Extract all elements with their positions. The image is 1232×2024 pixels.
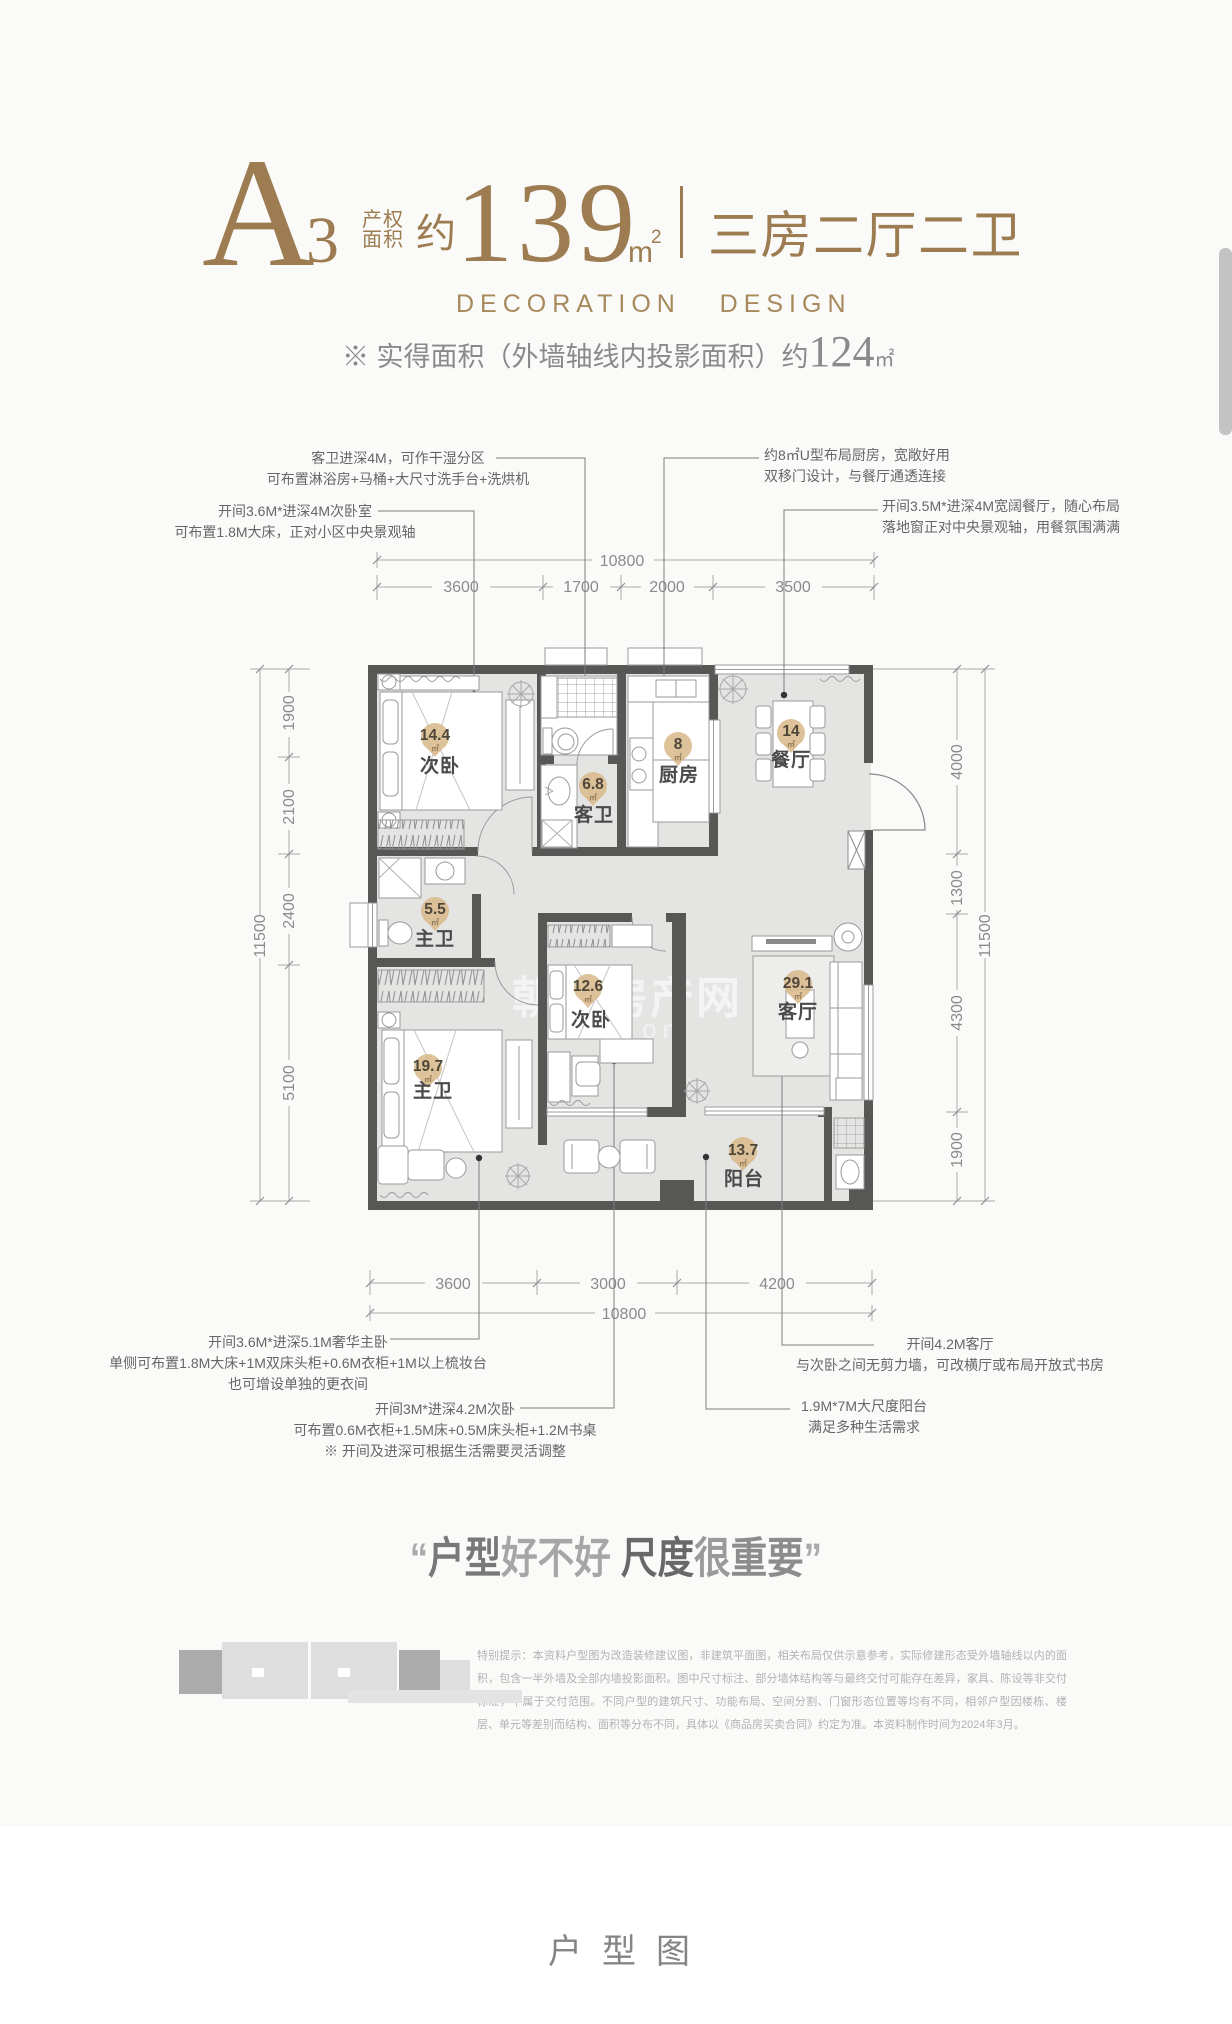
svg-text:餐厅: 餐厅 bbox=[771, 748, 811, 771]
svg-text:㎡: ㎡ bbox=[584, 995, 592, 1004]
svg-text:1700: 1700 bbox=[563, 579, 599, 596]
svg-text:3000: 3000 bbox=[590, 1276, 626, 1293]
svg-text:10800: 10800 bbox=[602, 1306, 647, 1323]
svg-text:5.5: 5.5 bbox=[424, 901, 446, 918]
svg-text:次卧: 次卧 bbox=[420, 754, 460, 777]
svg-text:㎡: ㎡ bbox=[431, 744, 439, 753]
svg-text:㎡: ㎡ bbox=[787, 740, 795, 749]
svg-text:1300: 1300 bbox=[949, 870, 966, 906]
svg-text:㎡: ㎡ bbox=[589, 793, 597, 802]
svg-text:㎡: ㎡ bbox=[794, 992, 802, 1001]
svg-text:客卫: 客卫 bbox=[574, 803, 614, 826]
svg-text:11500: 11500 bbox=[977, 914, 994, 957]
svg-text:10800: 10800 bbox=[600, 553, 645, 570]
svg-text:4000: 4000 bbox=[949, 744, 966, 780]
svg-text:29.1: 29.1 bbox=[783, 975, 814, 992]
svg-text:㎡: ㎡ bbox=[431, 918, 439, 927]
svg-text:1900: 1900 bbox=[281, 695, 298, 731]
svg-text:11500: 11500 bbox=[252, 914, 269, 957]
svg-text:14: 14 bbox=[782, 723, 800, 740]
svg-text:5100: 5100 bbox=[281, 1065, 298, 1101]
svg-text:次卧: 次卧 bbox=[571, 1008, 611, 1031]
svg-text:13.7: 13.7 bbox=[728, 1142, 758, 1159]
svg-text:4200: 4200 bbox=[759, 1276, 795, 1293]
svg-text:4300: 4300 bbox=[949, 995, 966, 1031]
svg-text:1900: 1900 bbox=[949, 1132, 966, 1168]
svg-text:主卫: 主卫 bbox=[413, 1080, 453, 1102]
svg-text:阳台: 阳台 bbox=[724, 1167, 764, 1190]
svg-text:2100: 2100 bbox=[281, 789, 298, 825]
svg-text:19.7: 19.7 bbox=[413, 1058, 443, 1075]
svg-text:厨房: 厨房 bbox=[659, 763, 699, 786]
svg-text:3500: 3500 bbox=[775, 579, 811, 596]
svg-text:12.6: 12.6 bbox=[573, 978, 604, 995]
svg-text:6.8: 6.8 bbox=[582, 776, 604, 793]
svg-text:2000: 2000 bbox=[649, 579, 685, 596]
svg-text:㎡: ㎡ bbox=[739, 1159, 747, 1168]
svg-text:14.4: 14.4 bbox=[420, 727, 451, 744]
svg-text:㎡: ㎡ bbox=[674, 753, 682, 762]
svg-text:2400: 2400 bbox=[281, 893, 298, 929]
svg-text:客厅: 客厅 bbox=[778, 1000, 818, 1023]
svg-text:8: 8 bbox=[674, 736, 683, 753]
svg-text:3600: 3600 bbox=[435, 1276, 471, 1293]
svg-text:主卫: 主卫 bbox=[415, 928, 455, 950]
